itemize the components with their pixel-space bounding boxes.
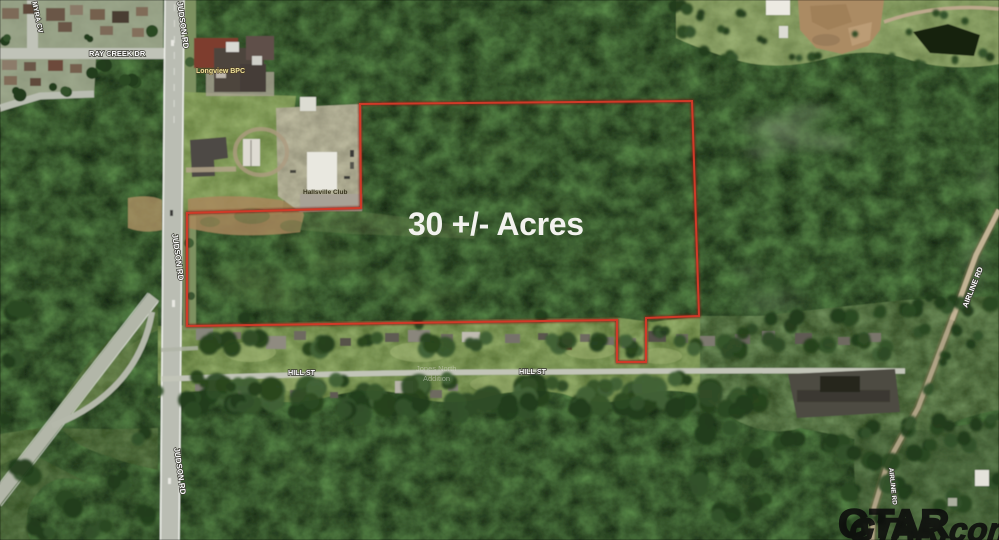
svg-text:Longview BPC: Longview BPC <box>196 68 245 75</box>
svg-text:Addition: Addition <box>423 374 450 383</box>
svg-text:RAY CREEK DR: RAY CREEK DR <box>89 49 146 58</box>
svg-text:GTAR.com: GTAR.com <box>847 512 999 540</box>
svg-text:30 +/- Acres: 30 +/- Acres <box>408 206 584 242</box>
svg-text:HILL ST: HILL ST <box>519 367 547 376</box>
svg-text:Hallsville Club: Hallsville Club <box>303 189 347 196</box>
svg-text:Jones North: Jones North <box>416 364 456 373</box>
svg-text:HILL ST: HILL ST <box>288 368 316 377</box>
